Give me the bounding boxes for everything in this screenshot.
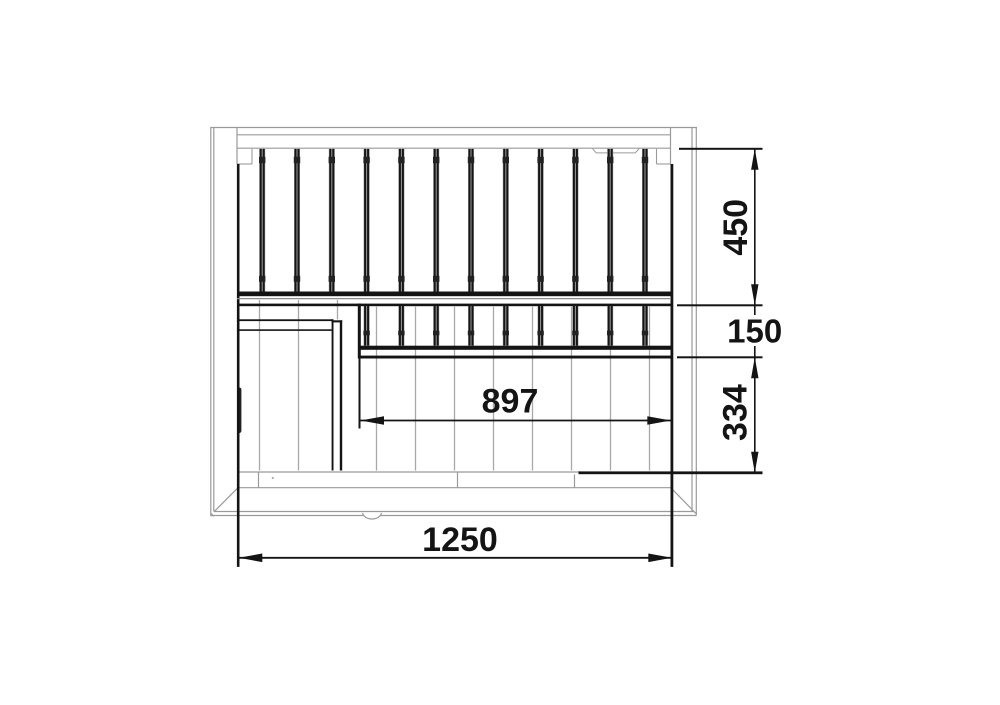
svg-text:334: 334: [717, 384, 755, 441]
svg-text:897: 897: [482, 383, 539, 421]
svg-text:150: 150: [727, 312, 782, 349]
svg-text:450: 450: [717, 199, 755, 256]
svg-text:1250: 1250: [422, 521, 498, 559]
